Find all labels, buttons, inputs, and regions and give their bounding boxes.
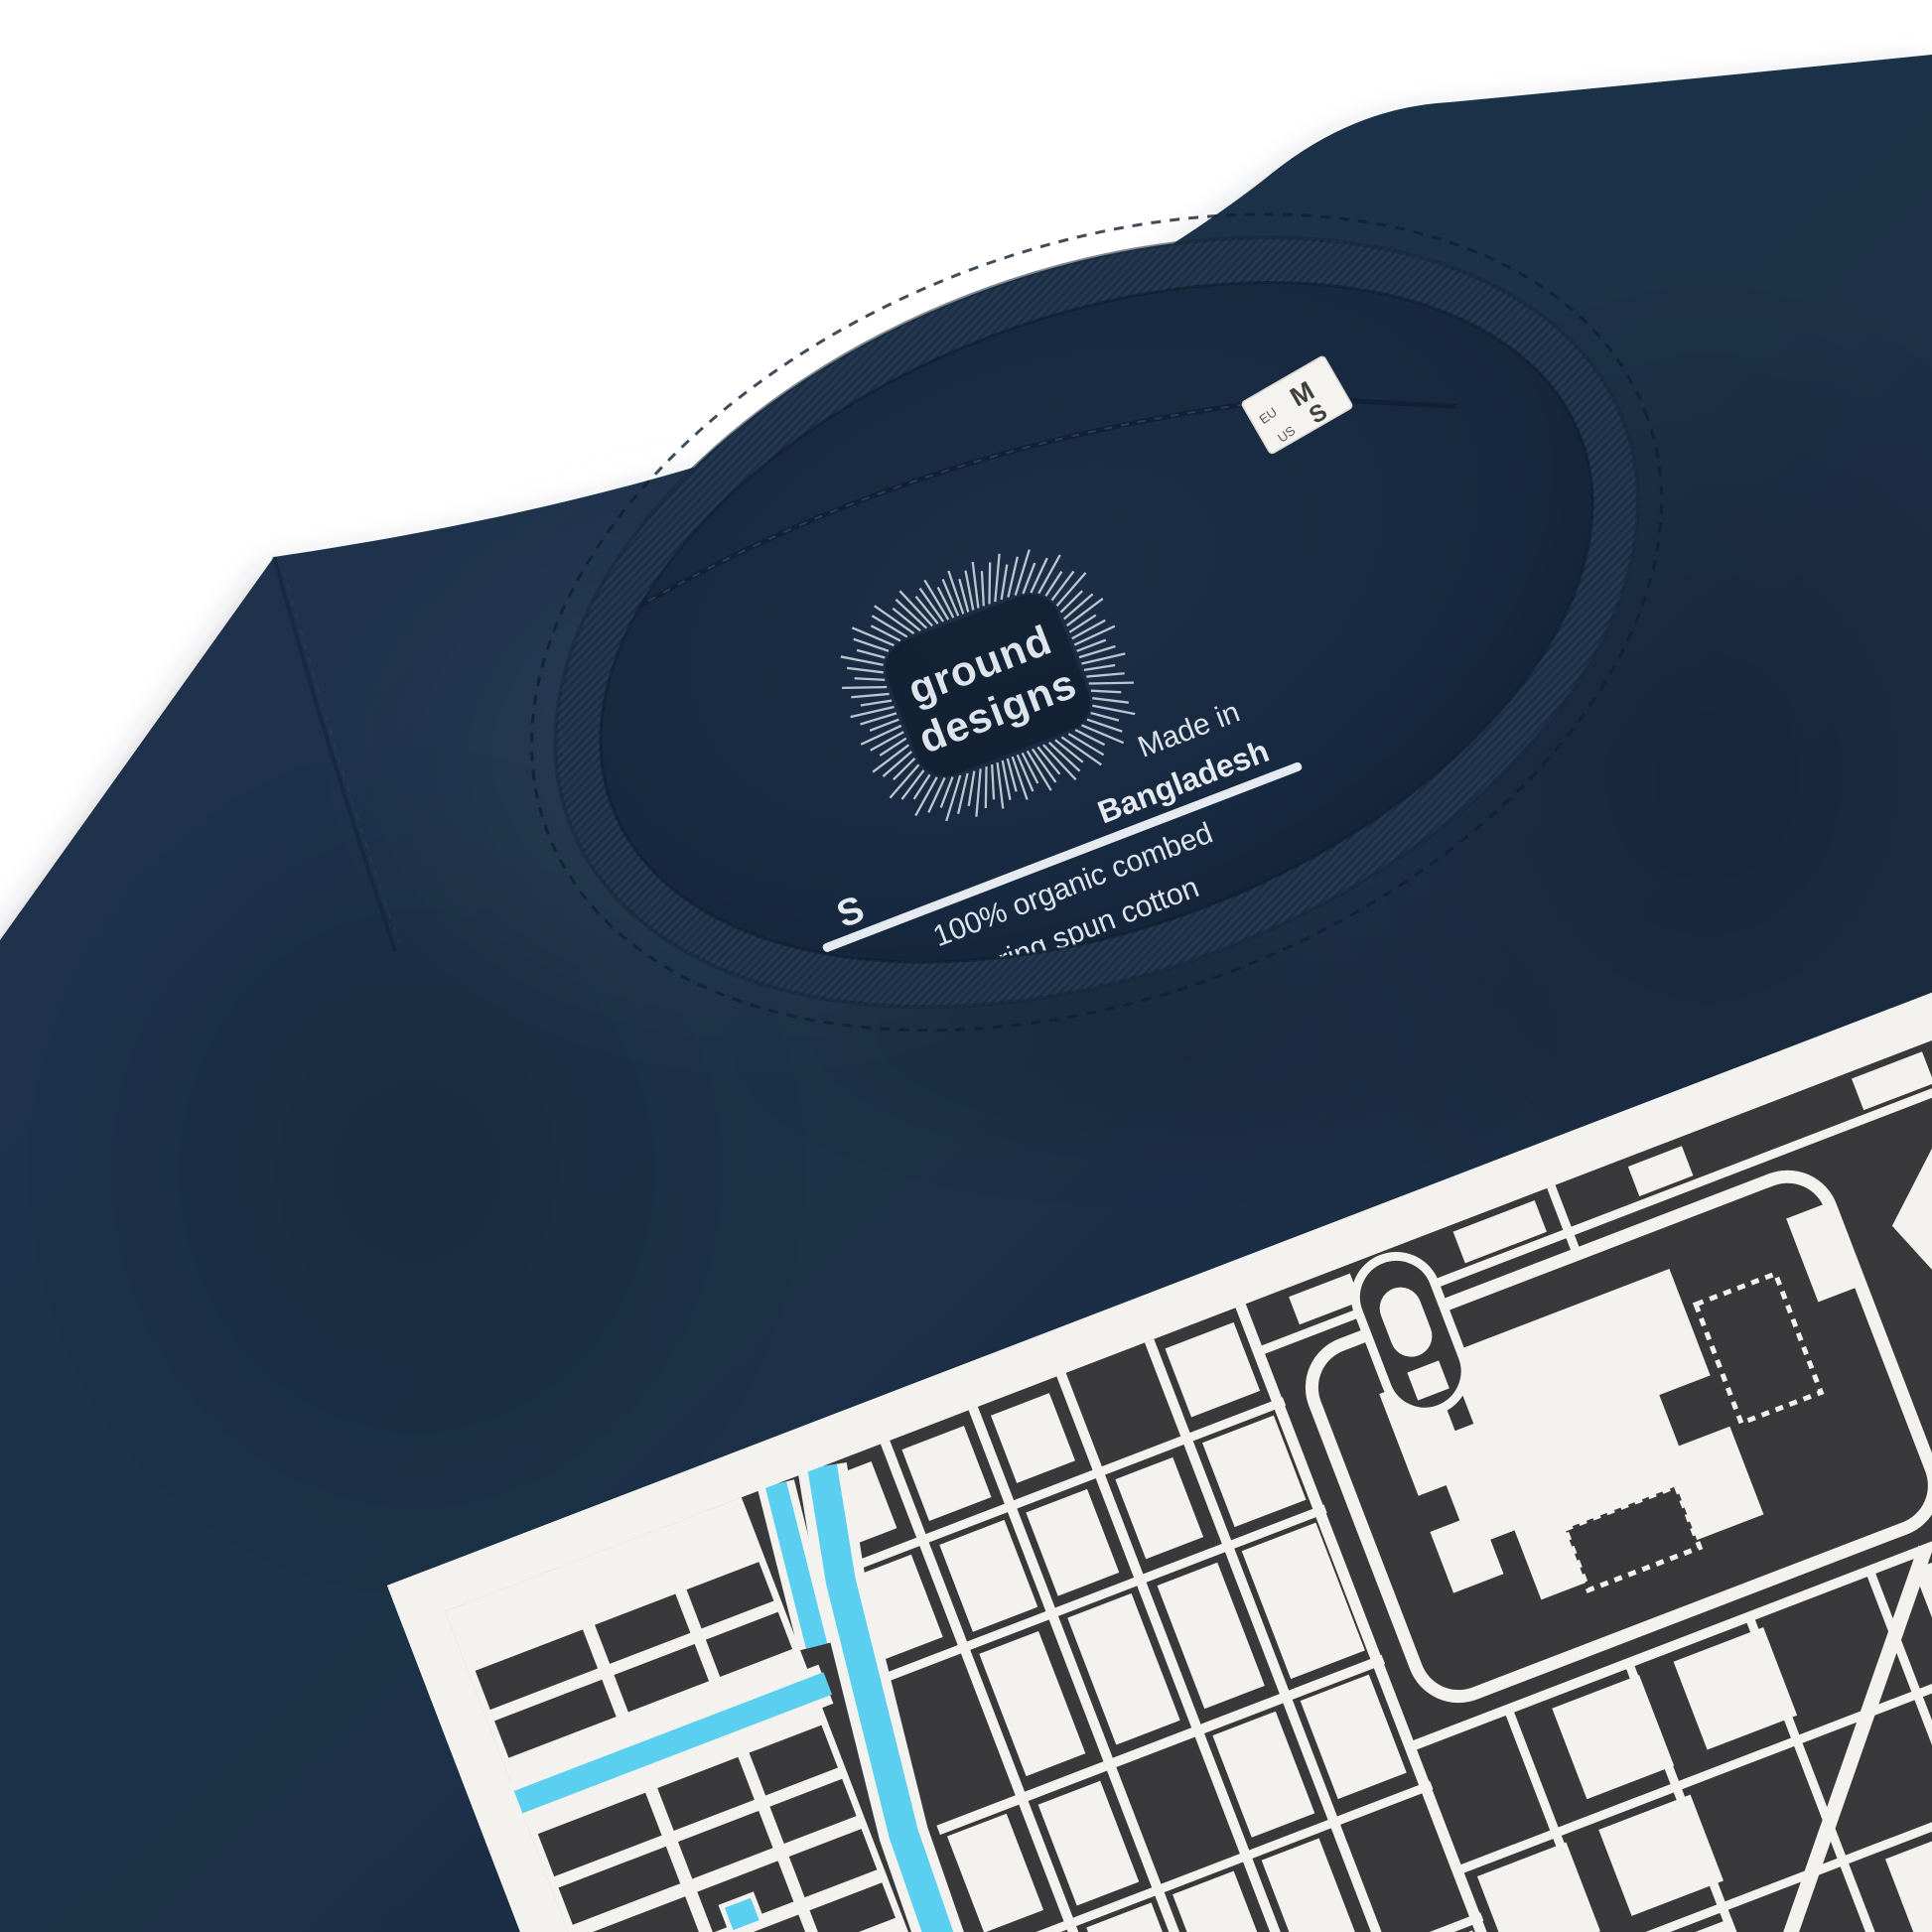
tshirt-scene: ground designs Made in Bangladesh S 100%… bbox=[0, 0, 1932, 1932]
product-photo: ground designs Made in Bangladesh S 100%… bbox=[0, 0, 1932, 1932]
